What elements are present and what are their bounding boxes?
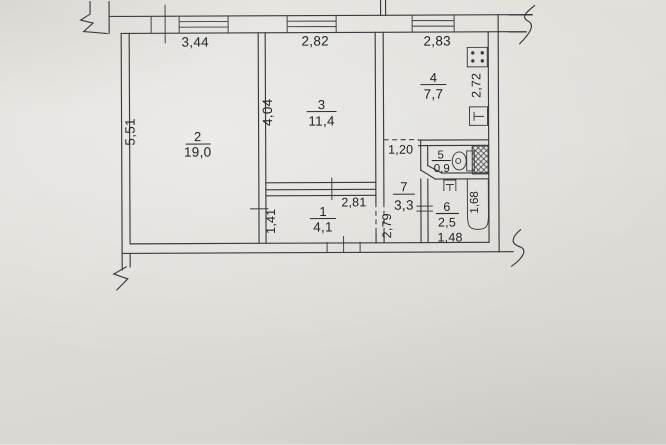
room7-number: 7 (400, 179, 407, 194)
ventilation-shaft-icon (472, 146, 488, 174)
room7-label: 7 3,3 (393, 179, 415, 213)
dim-bathroom-width: 1,48 (437, 230, 462, 244)
right-wall-outer-line (498, 15, 499, 252)
room2-area: 19,0 (184, 145, 212, 160)
room2-number: 2 (194, 129, 201, 144)
door-ticks-bathroom (416, 206, 433, 211)
top-wall-outer-line (109, 15, 532, 17)
washbasin-icon (444, 180, 456, 191)
balcony-partition-lines (381, 0, 386, 15)
window-room2-icon (179, 16, 228, 33)
room5-label: 5 0,9 (432, 149, 451, 175)
room6-number: 6 (443, 200, 450, 214)
stove-icon (467, 47, 487, 67)
left-wall-outer-line (121, 33, 122, 269)
room7-area: 3,3 (394, 198, 414, 213)
room-labels: 2 19,0 3 11,4 4 7,7 1 4,1 7 3,3 5 0,9 (184, 70, 459, 235)
wall-corridor-wc-bath (421, 140, 428, 243)
dim-room3-width: 2,82 (301, 34, 329, 49)
room5-area: 0,9 (434, 163, 450, 175)
room3-number: 3 (318, 97, 325, 112)
room4-number: 4 (430, 70, 437, 85)
room4-area: 7,7 (424, 87, 444, 102)
room4-label: 4 7,7 (420, 70, 446, 102)
dim-room2-width: 3,44 (181, 35, 209, 50)
wall-room3-room4-corridor (375, 32, 384, 243)
toilet-icon (452, 151, 474, 171)
room1-label: 1 4,1 (310, 204, 336, 235)
break-mark-top-left (81, 1, 108, 34)
dim-hall-width: 2,81 (341, 195, 366, 209)
room1-number: 1 (319, 204, 326, 219)
break-mark-bottom-right (512, 230, 524, 267)
room6-area: 2,5 (438, 215, 456, 229)
dim-room3-height: 4,04 (260, 98, 275, 126)
room1-area: 4,1 (313, 220, 333, 235)
bottom-wall-inner-line (130, 242, 489, 244)
room5-number: 5 (437, 150, 443, 162)
break-mark-top-right (520, 6, 535, 44)
kitchen-sink-icon (469, 107, 487, 126)
dim-bathtub-length: 1,68 (469, 191, 481, 213)
dim-room4-width: 2,83 (423, 33, 451, 48)
dim-room2-height: 5,51 (123, 118, 138, 146)
dimension-labels: 3,44 2,82 2,83 5,51 4,04 2,72 1,20 2,81 … (122, 33, 484, 246)
break-mark-bottom-left (114, 267, 128, 290)
dim-hall-height: 1,41 (264, 209, 278, 234)
window-room3-icon (287, 15, 336, 32)
room6-label: 6 2,5 (436, 200, 459, 230)
bottom-wall-outer-line (122, 252, 513, 254)
floor-plan-photo: 3,44 2,82 2,83 5,51 4,04 2,72 1,20 2,81 … (0, 0, 666, 444)
dim-kitchen-right-height: 2,72 (469, 73, 483, 98)
wall-room3-room1 (266, 182, 376, 195)
room2-label: 2 19,0 (184, 129, 212, 160)
window-room4-icon (412, 15, 454, 32)
entry-door-ticks-room1 (327, 236, 360, 253)
room3-area: 11,4 (308, 113, 335, 128)
floor-plan-drawing: 3,44 2,82 2,83 5,51 4,04 2,72 1,20 2,81 … (0, 0, 666, 445)
wall-kitchen-wc (419, 140, 489, 146)
dim-corridor-height: 2,79 (380, 213, 394, 238)
room3-label: 3 11,4 (306, 97, 336, 129)
dim-corridor-width: 1,20 (388, 143, 413, 157)
